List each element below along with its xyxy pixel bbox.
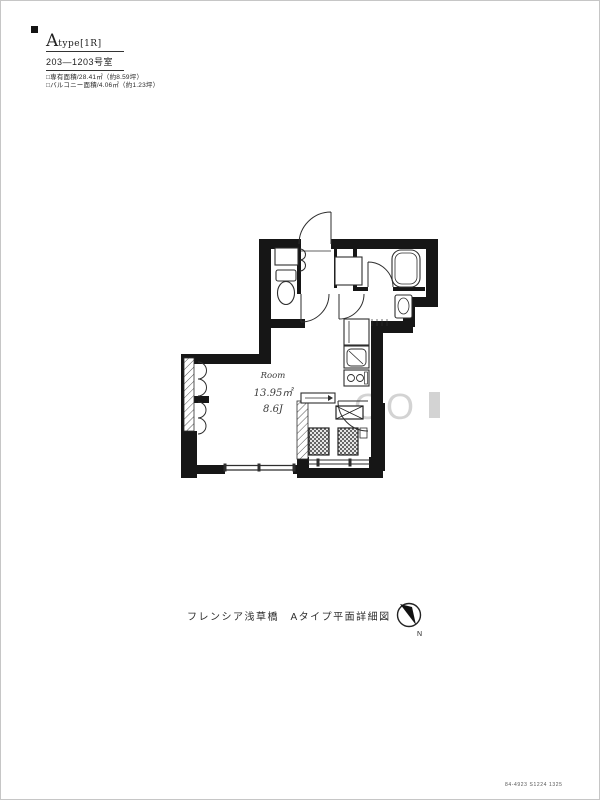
watermark-fragment	[429, 392, 440, 418]
toilet-shelf	[275, 248, 298, 265]
toilet-bowl	[278, 282, 295, 305]
plan-caption: フレンシア浅草橋 Aタイプ平面詳細図	[187, 608, 377, 623]
compass: N	[395, 599, 429, 639]
floorplan-drawing: OO	[169, 194, 453, 490]
main-window-tick2	[258, 464, 260, 471]
balcony-area-line: □バルコニー面積/4.06㎡（約1.23坪）	[46, 82, 196, 90]
entrance-door	[299, 212, 331, 244]
hatched-fixture-right	[338, 428, 358, 455]
stove-burner-right	[357, 375, 364, 382]
toilet-tank	[276, 270, 296, 281]
room-label-area: 13.95㎡	[254, 387, 295, 399]
hatched-fixture-left	[309, 428, 329, 455]
unit-range: 203—1203号室	[46, 55, 124, 71]
closet-bifold-lower	[198, 402, 206, 434]
exclusive-area-line: □専有面積/28.41㎡（約8.59坪）	[46, 74, 196, 82]
washbasin-bowl	[398, 298, 409, 314]
plan-type-suffix: type[1R]	[58, 39, 101, 49]
bathroom-door	[368, 262, 393, 287]
hatched-partitions	[184, 358, 308, 459]
compass-needle	[400, 604, 416, 625]
compass-north-label: N	[417, 631, 422, 638]
watermark: OO	[354, 386, 440, 427]
alcove-small-box	[360, 428, 367, 438]
stove-burner-left	[348, 375, 355, 382]
area-info: □専有面積/28.41㎡（約8.59坪） □バルコニー面積/4.06㎡（約1.2…	[46, 74, 196, 90]
title-block: Atype[1R] 203—1203号室 □専有面積/28.41㎡（約8.59坪…	[46, 31, 196, 90]
alcove-window-tick1	[317, 459, 319, 466]
washer-space	[335, 257, 362, 285]
plan-type-letter: A	[46, 31, 58, 51]
alcove-fixtures	[309, 406, 363, 455]
closet-back-strip	[184, 358, 194, 431]
room-label-tatami: 8.6J	[263, 404, 284, 415]
fridge-space	[344, 319, 369, 345]
room-label-name: Room	[260, 371, 286, 381]
bathtub-inner	[395, 253, 417, 284]
stove-grill	[365, 372, 368, 384]
main-window-tick3	[293, 464, 295, 471]
washroom-door	[339, 294, 364, 319]
plan-type-title: Atype[1R]	[46, 31, 124, 52]
corner-square-mark	[31, 26, 38, 33]
alcove-window-tick2	[349, 459, 351, 466]
alcove-partition	[297, 401, 308, 459]
toilet-door	[301, 294, 329, 322]
footer-code: 84-4923 S1224 1325	[505, 782, 563, 788]
main-window-tick1	[224, 464, 226, 471]
room-label: Room 13.95㎡ 8.6J	[254, 371, 295, 415]
closet-bifold-upper	[198, 362, 207, 396]
floorplan-page: Atype[1R] 203—1203号室 □専有面積/28.41㎡（約8.59坪…	[0, 0, 600, 800]
